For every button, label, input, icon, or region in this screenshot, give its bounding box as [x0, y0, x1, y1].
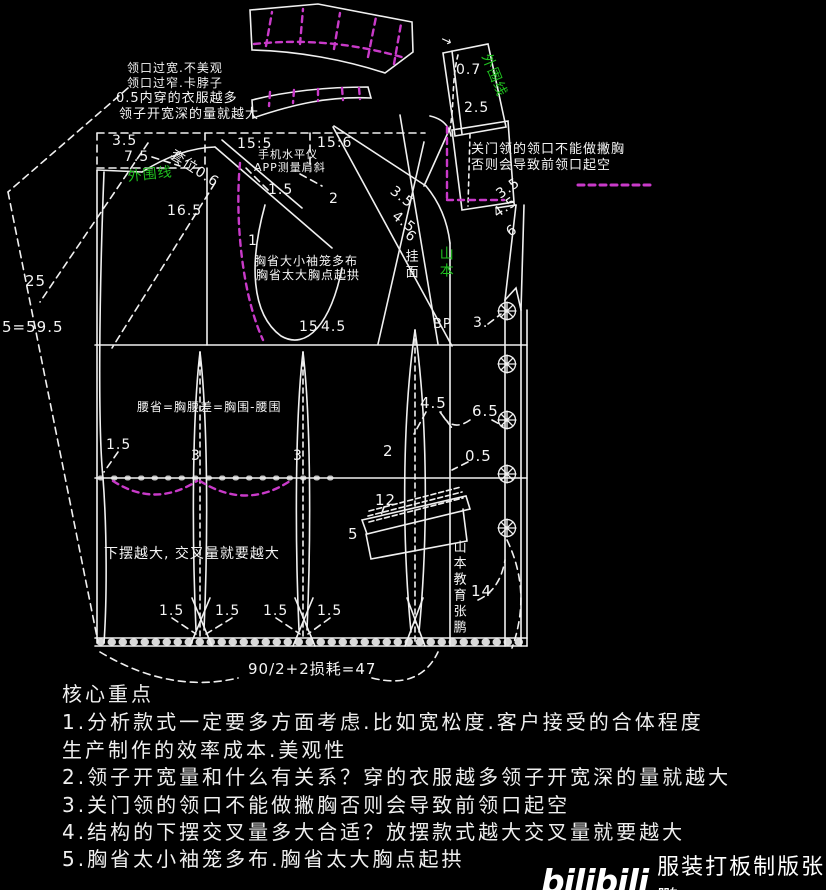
dim-0-5: 0.5: [465, 449, 492, 465]
construction-guides: [8, 88, 521, 682]
dim-5-59-5: 5=59.5: [2, 320, 64, 336]
dim-2-shoulder: 2: [329, 192, 339, 207]
note-dart-large: 胸省太大胸点起拱: [256, 269, 360, 282]
buttons: [498, 302, 516, 537]
dim-1-5-hem-a: 1.5: [159, 604, 184, 619]
dim-2-dart: 2: [383, 444, 394, 460]
button-icon: [498, 411, 516, 429]
label-bp: BP: [433, 318, 452, 332]
button-icon: [498, 519, 516, 537]
collar-pieces: [250, 4, 413, 118]
dim-3-dart-a: 3: [191, 449, 201, 464]
dim-1-5-side: 1.5: [106, 438, 131, 453]
dim-1-5-hem-b: 1.5: [215, 604, 240, 619]
key-points-title: 核心重点: [62, 681, 822, 708]
key-point-line: 生产制作的效率成本.美观性: [62, 737, 822, 764]
formula-waist-dart: 腰省=胸腰差=胸围-腰围: [137, 401, 281, 414]
dim-12-pocket: 12: [375, 493, 396, 509]
note-neck-depth: 领子开宽深的量就越大: [119, 108, 259, 122]
button-icon: [498, 465, 516, 483]
note-phone-level-1: 手机水平仪: [258, 149, 318, 161]
note-dart-small: 胸省大小袖笼多布: [254, 255, 358, 268]
dim-3-dart-b: 3: [293, 449, 303, 464]
waist-darts: [190, 330, 425, 646]
dim-4-5-armhole: 4.5: [321, 320, 346, 335]
formula-hem: 90/2+2损耗=47: [248, 662, 376, 678]
dim-4-5-waist: 4.5: [420, 396, 447, 412]
key-point-line: 4.结构的下摆交叉量多大合适？放摆款式越大交叉量就要越大: [62, 819, 822, 846]
watermark-vertical: 山本教育张鹏: [451, 540, 465, 636]
dim-5-pocket: 5: [348, 527, 359, 543]
watermark: bilibili 服装打板制版张鹏: [541, 849, 826, 890]
note-closed-collar-2: 否则会导致前领口起空: [471, 159, 611, 173]
button-icon: [498, 355, 516, 373]
dim-1-5-hem-d: 1.5: [317, 604, 342, 619]
key-points-block: 核心重点 1.分析款式一定要多方面考虑.比如宽松度.客户接受的合体程度生产制作的…: [62, 681, 822, 874]
dim-16-5: 16.5: [167, 204, 202, 219]
watermark-label: 服装打板制版张鹏: [657, 849, 826, 890]
note-hem: 下摆越大, 交叉量就要越大: [104, 547, 280, 562]
bilibili-logo: bilibili: [541, 862, 648, 890]
key-point-line: 3.关门领的领口不能做撇胸否则会导致前领口起空: [62, 792, 822, 819]
note-neck-narrow: 领口过窄.卡脖子: [127, 77, 223, 90]
dim-6-5-waist: 6.5: [472, 404, 499, 420]
note-phone-level-2: APP测量肩斜: [254, 162, 326, 174]
dim-2-5-collar: 2.5: [464, 101, 489, 116]
key-point-line: 1.分析款式一定要多方面考虑.比如宽松度.客户接受的合体程度: [62, 709, 822, 736]
dim-1-5-shoulder: 1.5: [268, 183, 293, 198]
note-neck-wide: 领口过宽.不美观: [127, 62, 223, 75]
dim-1-5-hem-c: 1.5: [263, 604, 288, 619]
dim-1: 1: [248, 234, 258, 249]
key-point-line: 2.领子开宽量和什么有关系？穿的衣服越多领子开宽深的量就越大: [62, 764, 822, 791]
dim-14: 14: [471, 584, 492, 600]
dim-3-neck: 3.: [473, 316, 488, 331]
dim-0-7-collar: 0.7: [456, 63, 481, 78]
dim-15-armhole: 15: [299, 320, 319, 335]
label-facing: 挂面: [403, 249, 417, 281]
ratio-front-shoulder: 15:6: [317, 136, 352, 151]
dim-3-5-back-neck: 3.5: [112, 134, 137, 149]
note-inner-layers: 0.5内穿的衣服越多: [116, 92, 238, 106]
video-frame: 领口过宽.不美观领口过窄.卡脖子0.5内穿的衣服越多领子开宽深的量就越大3.57…: [0, 0, 826, 890]
note-closed-collar-1: 关门领的领口不能做撇胸: [471, 143, 625, 157]
dim-25: 25: [25, 274, 46, 290]
watermark-green: 山本: [438, 246, 453, 280]
dim-7-5-back-neck: 7.5: [124, 150, 149, 165]
button-icon: [498, 302, 516, 320]
